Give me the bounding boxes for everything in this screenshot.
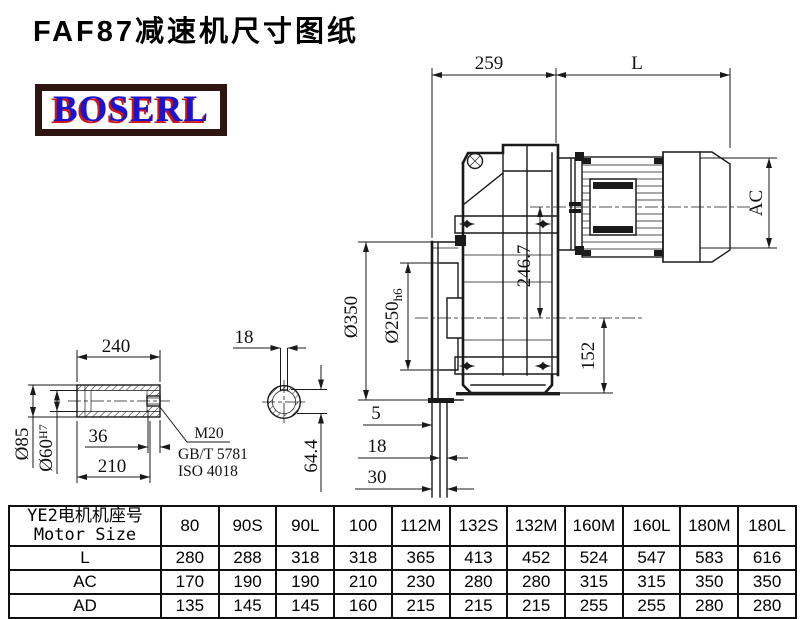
standard-gb-label: GB/T 5781 xyxy=(178,446,248,463)
cell: 255 xyxy=(623,594,681,618)
dimension-drawing: 259 L AC 246.7 152 Ø350 Ø250h6 5 18 30 2… xyxy=(0,0,800,505)
dim-152-label: 152 xyxy=(578,342,599,371)
key-section-view: 18 64.4 xyxy=(233,327,327,492)
cell: 190 xyxy=(276,570,334,594)
column-header: 160M xyxy=(565,506,623,546)
motor-size-table: YE2电机机座号 Motor Size 80 90S 90L 100 112M … xyxy=(8,505,797,619)
row-label: AC xyxy=(9,570,161,594)
cell: 315 xyxy=(623,570,681,594)
bolt-head-icon xyxy=(459,220,552,371)
cell: 215 xyxy=(392,594,450,618)
cell: 280 xyxy=(161,546,219,570)
motor-size-header-zh: YE2电机机座号 xyxy=(10,507,160,526)
dim-240-label: 240 xyxy=(102,336,131,357)
cell: 145 xyxy=(276,594,334,618)
dim-250-tolerance: h6 xyxy=(390,288,405,302)
dim-key-width-label: 18 xyxy=(235,327,254,348)
dim-36-label: 36 xyxy=(89,426,108,447)
row-label: L xyxy=(9,546,161,570)
cell: 135 xyxy=(161,594,219,618)
dim-30-label: 30 xyxy=(368,467,387,488)
cell: 210 xyxy=(334,570,392,594)
cell: 524 xyxy=(565,546,623,570)
main-view-gearbox xyxy=(455,145,560,395)
cell: 350 xyxy=(680,570,738,594)
cell: 452 xyxy=(507,546,565,570)
dim-AC-label: AC xyxy=(746,190,767,216)
cell: 215 xyxy=(507,594,565,618)
table-row-L: L 280 288 318 318 365 413 452 524 547 58… xyxy=(9,546,796,570)
cell: 160 xyxy=(334,594,392,618)
cell: 616 xyxy=(738,546,796,570)
motor-size-header-en: Motor Size xyxy=(10,526,160,545)
column-header: 180L xyxy=(738,506,796,546)
table-row-AD: AD 135 145 145 160 215 215 215 255 255 2… xyxy=(9,594,796,618)
dim-85-label: Ø85 xyxy=(12,428,33,461)
cell: 288 xyxy=(219,546,277,570)
dim-60-label: Ø60H7 xyxy=(36,424,57,471)
dim-key-height-label: 64.4 xyxy=(301,439,322,473)
cell: 350 xyxy=(738,570,796,594)
dim-350-label: Ø350 xyxy=(341,296,362,338)
dim-259-label: 259 xyxy=(475,53,504,74)
cell: 547 xyxy=(623,546,681,570)
dim-250-label: Ø250h6 xyxy=(382,288,405,344)
table-header-motor-size: YE2电机机座号 Motor Size xyxy=(9,506,161,546)
column-header: 100 xyxy=(334,506,392,546)
cell: 365 xyxy=(392,546,450,570)
dim-250-value: Ø250 xyxy=(382,301,403,343)
dim-210-label: 210 xyxy=(98,456,127,477)
dim-60-value: Ø60 xyxy=(36,439,57,472)
dim-18-offset-label: 18 xyxy=(368,436,387,457)
cell: 280 xyxy=(507,570,565,594)
cell: 280 xyxy=(680,594,738,618)
standard-iso-label: ISO 4018 xyxy=(178,463,238,480)
table-row-AC: AC 170 190 190 210 230 280 280 315 315 3… xyxy=(9,570,796,594)
table-header-row: YE2电机机座号 Motor Size 80 90S 90L 100 112M … xyxy=(9,506,796,546)
cell: 583 xyxy=(680,546,738,570)
cell: 280 xyxy=(738,594,796,618)
center-lines xyxy=(68,207,750,424)
cell: 145 xyxy=(219,594,277,618)
cell: 413 xyxy=(450,546,508,570)
cell: 230 xyxy=(392,570,450,594)
column-header: 90S xyxy=(219,506,277,546)
cell: 280 xyxy=(450,570,508,594)
dim-L-label: L xyxy=(631,53,643,74)
dim-246-label: 246.7 xyxy=(514,245,535,288)
cell: 170 xyxy=(161,570,219,594)
cell: 318 xyxy=(276,546,334,570)
column-header: 132S xyxy=(450,506,508,546)
shaft-section-view: 240 Ø85 Ø60H7 36 210 M20 GB/T 5781 ISO 4… xyxy=(12,336,248,483)
cell: 190 xyxy=(219,570,277,594)
column-header: 80 xyxy=(161,506,219,546)
dim-60-tolerance: H7 xyxy=(36,424,50,439)
column-header: 180M xyxy=(680,506,738,546)
dim-5-label: 5 xyxy=(371,403,381,424)
column-header: 90L xyxy=(276,506,334,546)
row-label: AD xyxy=(9,594,161,618)
cell: 255 xyxy=(565,594,623,618)
column-header: 160L xyxy=(623,506,681,546)
cell: 318 xyxy=(334,546,392,570)
column-header: 132M xyxy=(507,506,565,546)
column-header: 112M xyxy=(392,506,450,546)
cell: 215 xyxy=(450,594,508,618)
oil-plug-icon xyxy=(468,154,483,169)
thread-spec-label: M20 xyxy=(194,425,224,442)
cell: 315 xyxy=(565,570,623,594)
